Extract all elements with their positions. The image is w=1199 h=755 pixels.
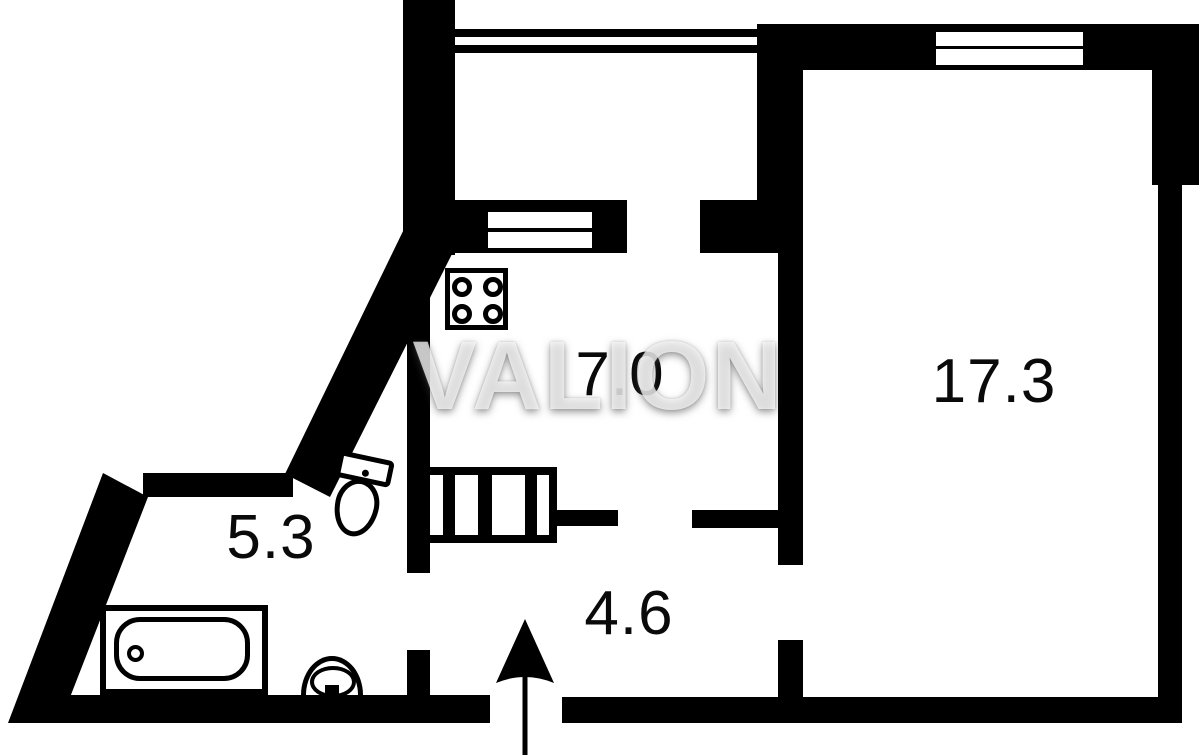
- toilet-flush-button: [361, 469, 369, 477]
- stove-burner-icon: [452, 277, 472, 297]
- balcony-window-outer-line: [452, 29, 757, 37]
- left-exterior-wall: [403, 0, 455, 255]
- stove-burner-icon: [483, 277, 503, 297]
- kitchen-partition-stub-right: [692, 510, 778, 528]
- bottom-exterior-wall-left: [55, 695, 490, 723]
- bathroom-step-wall: [143, 473, 293, 497]
- balcony-window-inner-line: [452, 45, 757, 53]
- stove-burner-icon: [483, 304, 503, 324]
- right-exterior-wall: [1158, 185, 1182, 723]
- living-room-left-wall-lower: [778, 640, 803, 700]
- living-room-left-wall: [778, 253, 803, 565]
- vent-bar: [525, 475, 537, 535]
- bottom-exterior-wall-right: [562, 697, 1182, 723]
- right-exterior-wall-upper: [1152, 24, 1199, 185]
- stove-burner-icon: [452, 304, 472, 324]
- ventilation-shaft-icon: [422, 467, 557, 543]
- bathtub-icon: [100, 605, 268, 695]
- floor-plan: 7.0 17.3 5.3 4.6 VALION: [0, 0, 1199, 755]
- sink-icon: [301, 656, 363, 695]
- kitchen-partition-stub-left: [557, 510, 618, 526]
- vent-bar: [478, 475, 492, 535]
- bathtub-basin: [114, 617, 250, 681]
- kitchen-area-label: 7.0: [520, 344, 720, 406]
- bathroom-right-wall-lower: [407, 650, 430, 698]
- sink-faucet: [325, 685, 339, 695]
- living-room-area-label: 17.3: [894, 351, 1094, 413]
- bathroom-area-label: 5.3: [171, 507, 371, 569]
- bathtub-drain: [127, 645, 144, 662]
- kitchen-window-mullion: [488, 228, 592, 232]
- stove-icon: [445, 268, 508, 330]
- living-room-window-mullion: [936, 46, 1083, 49]
- hallway-area-label: 4.6: [529, 583, 729, 645]
- toilet-tank: [335, 450, 395, 488]
- vent-bar: [443, 475, 455, 535]
- entrance-arrow-stem: [523, 677, 528, 755]
